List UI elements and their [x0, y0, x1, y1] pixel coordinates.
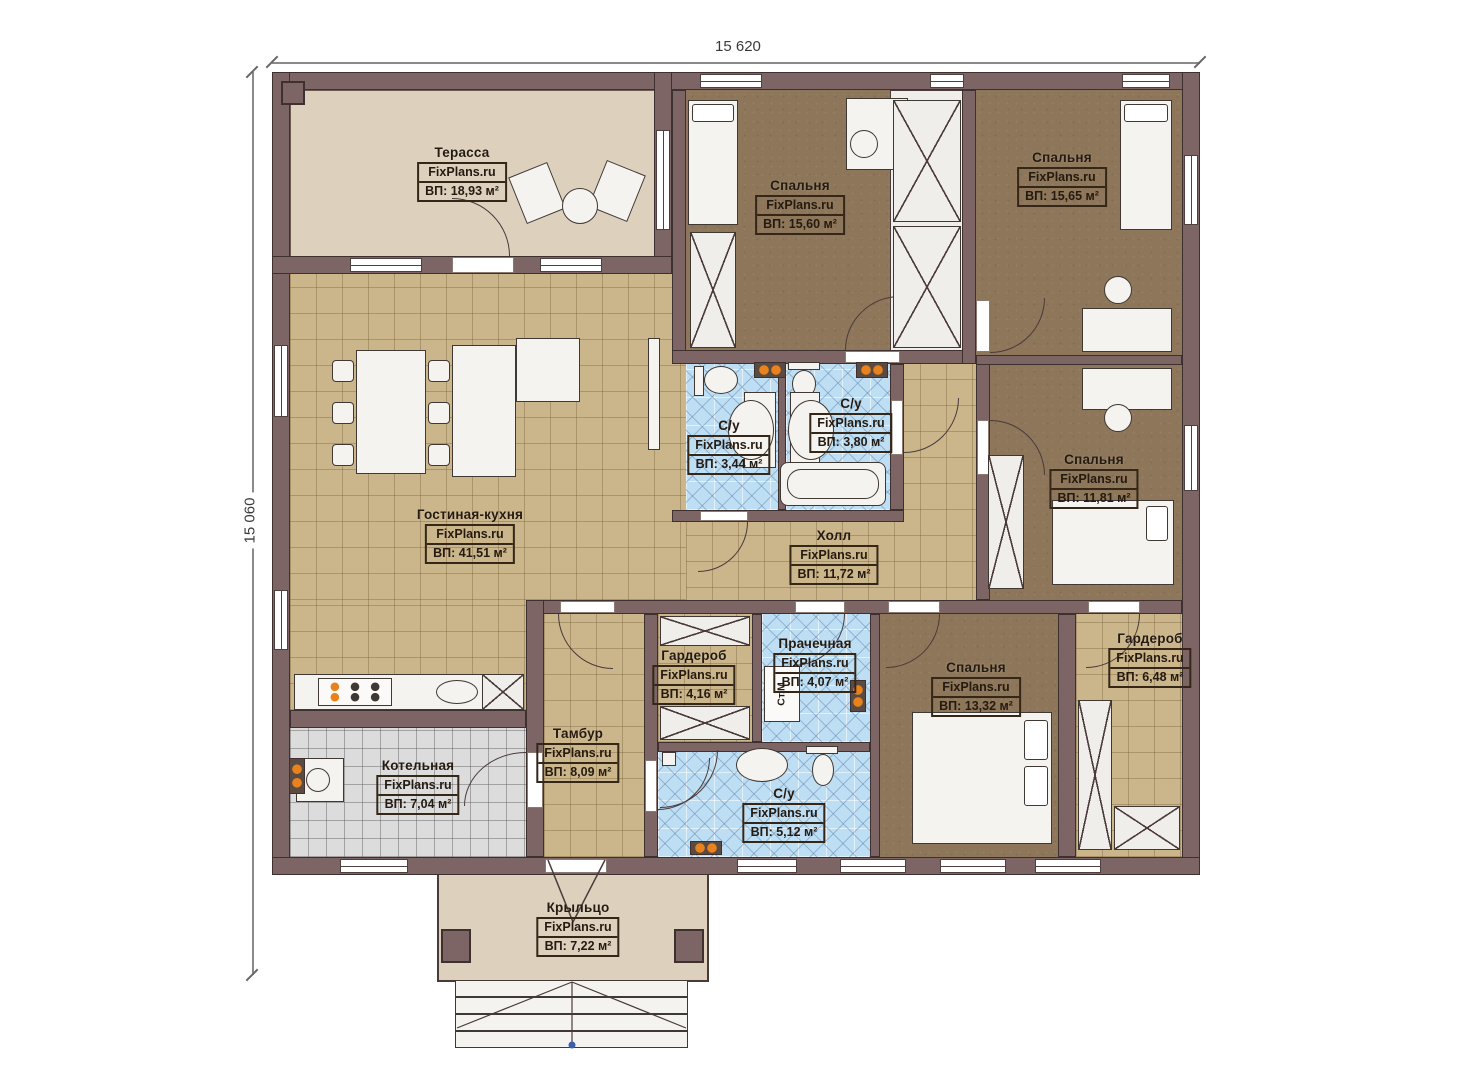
room-info-box: FixPlans.ru ВП: 7,22 м²: [536, 917, 619, 957]
bed-pillow: [1146, 506, 1168, 541]
wardrobe-box: [988, 455, 1024, 589]
room-label-bath-1: С/у FixPlans.ru ВП: 3,44 м²: [687, 418, 770, 475]
room-info-box: FixPlans.ru ВП: 7,04 м²: [376, 775, 459, 815]
brand-label: FixPlans.ru: [775, 655, 854, 672]
wardrobe-box: [893, 226, 961, 348]
wall: [672, 350, 976, 364]
dimension-line-top: [272, 62, 1200, 64]
room-label-wardrobe-1: Гардероб FixPlans.ru ВП: 4,16 м²: [652, 648, 735, 705]
shower-tray: [662, 752, 676, 766]
wall: [1058, 614, 1076, 857]
room-info-box: FixPlans.ru ВП: 11,72 м²: [789, 545, 878, 585]
area-label: ВП: 41,51 м²: [427, 543, 513, 562]
area-label: ВП: 3,44 м²: [689, 454, 768, 473]
wardrobe-box: [690, 232, 736, 348]
area-label: ВП: 11,81 м²: [1051, 488, 1136, 507]
area-label: ВП: 5,12 м²: [744, 822, 823, 841]
brand-label: FixPlans.ru: [689, 437, 768, 454]
room-label-bath-2: С/у FixPlans.ru ВП: 3,80 м²: [809, 396, 892, 453]
wall: [672, 90, 686, 364]
window: [1122, 74, 1170, 88]
toilet-tank: [694, 366, 704, 396]
floor-plan-canvas: 15 620 15 060: [0, 0, 1473, 1080]
area-label: ВП: 7,22 м²: [538, 936, 617, 955]
dining-chair: [332, 444, 354, 466]
door-opening: [888, 601, 940, 613]
stove: [318, 678, 392, 706]
window: [656, 130, 670, 230]
brand-label: FixPlans.ru: [419, 164, 505, 181]
brand-label: FixPlans.ru: [1019, 169, 1105, 186]
wall: [976, 355, 1182, 365]
toilet: [704, 366, 738, 394]
bed-pillow: [1024, 720, 1048, 760]
brand-label: FixPlans.ru: [933, 679, 1019, 696]
dimension-label-top: 15 620: [710, 38, 766, 55]
room-info-box: FixPlans.ru ВП: 11,81 м²: [1049, 469, 1138, 509]
room-label-terrace: Терасса FixPlans.ru ВП: 18,93 м²: [417, 145, 507, 202]
brand-label: FixPlans.ru: [1110, 650, 1189, 667]
window: [940, 859, 1006, 873]
room-label-bedroom-4: Спальня FixPlans.ru ВП: 13,32 м²: [931, 660, 1021, 717]
room-name: Спальня: [770, 178, 830, 193]
brand-label: FixPlans.ru: [538, 919, 617, 936]
window: [1035, 859, 1101, 873]
door-opening: [795, 601, 845, 613]
wardrobe-box: [1114, 806, 1180, 850]
brand-label: FixPlans.ru: [427, 526, 513, 543]
room-name: Спальня: [1064, 452, 1124, 467]
dimension-label-left: 15 060: [241, 493, 258, 549]
brand-label: FixPlans.ru: [757, 197, 843, 214]
room-info-box: FixPlans.ru ВП: 8,09 м²: [536, 743, 619, 783]
room-label-living: Гостиная-кухня FixPlans.ru ВП: 41,51 м²: [417, 507, 523, 564]
area-label: ВП: 15,65 м²: [1019, 186, 1105, 205]
window: [340, 859, 408, 873]
window: [350, 258, 422, 272]
corner-column: [281, 81, 305, 105]
door-opening: [645, 760, 657, 812]
room-name: Прачечная: [778, 636, 851, 651]
door-opening: [560, 601, 615, 613]
area-label: ВП: 15,60 м²: [757, 214, 843, 233]
area-label: ВП: 11,72 м²: [791, 564, 876, 583]
door-opening: [976, 300, 990, 352]
room-name: Крыльцо: [547, 900, 610, 915]
desk-chair: [1104, 404, 1132, 432]
porch-steps-decoration: [430, 857, 710, 1057]
room-info-box: FixPlans.ru ВП: 15,60 м²: [755, 195, 845, 235]
door-opening: [891, 400, 903, 455]
room-name: С/у: [840, 396, 862, 411]
wardrobe-box: [893, 100, 961, 222]
room-info-box: FixPlans.ru ВП: 3,80 м²: [809, 413, 892, 453]
door-opening: [452, 257, 514, 273]
window: [737, 859, 797, 873]
room-name: Холл: [817, 528, 852, 543]
armchair: [516, 338, 580, 402]
room-info-box: FixPlans.ru ВП: 3,44 м²: [687, 435, 770, 475]
room-info-box: FixPlans.ru ВП: 41,51 м²: [425, 524, 515, 564]
room-label-bedroom-2: Спальня FixPlans.ru ВП: 15,65 м²: [1017, 150, 1107, 207]
room-label-bedroom-1: Спальня FixPlans.ru ВП: 15,60 м²: [755, 178, 845, 235]
tv-stand: [648, 338, 660, 450]
radiator: [289, 758, 305, 794]
room-name: Спальня: [946, 660, 1006, 675]
brand-label: FixPlans.ru: [744, 805, 823, 822]
room-info-box: FixPlans.ru ВП: 15,65 м²: [1017, 167, 1107, 207]
dining-table: [356, 350, 426, 474]
radiator: [754, 362, 786, 378]
room-name: Спальня: [1032, 150, 1092, 165]
wall: [752, 614, 762, 742]
wardrobe-box: [660, 616, 750, 646]
wardrobe-box: [660, 706, 750, 740]
window: [540, 258, 602, 272]
sink: [736, 748, 788, 782]
radiator: [690, 841, 722, 855]
desk: [1082, 308, 1172, 352]
room-name: Тамбур: [553, 726, 603, 741]
room-label-bedroom-3: Спальня FixPlans.ru ВП: 11,81 м²: [1049, 452, 1138, 509]
brand-label: FixPlans.ru: [378, 777, 457, 794]
area-label: ВП: 8,09 м²: [538, 762, 617, 781]
area-label: ВП: 4,16 м²: [654, 684, 733, 703]
room-info-box: FixPlans.ru ВП: 18,93 м²: [417, 162, 507, 202]
window: [840, 859, 906, 873]
bed-pillow: [1124, 104, 1168, 122]
area-label: ВП: 3,80 м²: [811, 432, 890, 451]
brand-label: FixPlans.ru: [811, 415, 890, 432]
room-label-boiler-room: Котельная FixPlans.ru ВП: 7,04 м²: [376, 758, 459, 815]
window: [274, 345, 288, 417]
room-name: Гардероб: [1117, 631, 1182, 646]
window: [930, 74, 964, 88]
room-name: Котельная: [382, 758, 454, 773]
area-label: ВП: 13,32 м²: [933, 696, 1019, 715]
window: [274, 590, 288, 650]
kitchen-sink: [436, 680, 478, 704]
room-label-laundry: Прачечная FixPlans.ru ВП: 4,07 м²: [773, 636, 856, 693]
bathtub-inner: [787, 469, 879, 499]
wall: [272, 72, 290, 875]
door-opening: [1088, 601, 1140, 613]
room-info-box: FixPlans.ru ВП: 5,12 м²: [742, 803, 825, 843]
door-opening: [700, 511, 748, 521]
window: [1184, 155, 1198, 225]
fridge: [482, 674, 524, 710]
bed-pillow: [1024, 766, 1048, 806]
sofa: [452, 345, 516, 477]
wall: [526, 600, 1182, 614]
room-name: Гардероб: [661, 648, 726, 663]
toilet-tank: [806, 746, 838, 754]
dining-chair: [428, 402, 450, 424]
room-name: С/у: [773, 786, 795, 801]
area-label: ВП: 4,07 м²: [775, 672, 854, 691]
dining-chair: [428, 444, 450, 466]
room-name: С/у: [718, 418, 740, 433]
dining-chair: [332, 402, 354, 424]
brand-label: FixPlans.ru: [538, 745, 617, 762]
desk-chair: [850, 130, 878, 158]
room-label-bath-3: С/у FixPlans.ru ВП: 5,12 м²: [742, 786, 825, 843]
room-info-box: FixPlans.ru ВП: 13,32 м²: [931, 677, 1021, 717]
brand-label: FixPlans.ru: [654, 667, 733, 684]
wardrobe-box: [1078, 700, 1112, 850]
room-name: Терасса: [435, 145, 490, 160]
toilet-tank: [788, 362, 820, 370]
wall: [870, 614, 880, 857]
dining-chair: [332, 360, 354, 382]
area-label: ВП: 6,48 м²: [1110, 667, 1189, 686]
room-label-porch: Крыльцо FixPlans.ru ВП: 7,22 м²: [536, 900, 619, 957]
boiler-dial: [306, 768, 330, 792]
window: [1184, 425, 1198, 491]
room-label-wardrobe-2: Гардероб FixPlans.ru ВП: 6,48 м²: [1108, 631, 1191, 688]
desk-chair: [1104, 276, 1132, 304]
area-label: ВП: 7,04 м²: [378, 794, 457, 813]
bed-pillow: [692, 104, 734, 122]
room-info-box: FixPlans.ru ВП: 4,07 м²: [773, 653, 856, 693]
brand-label: FixPlans.ru: [1051, 471, 1136, 488]
wall: [962, 90, 976, 364]
room-info-box: FixPlans.ru ВП: 6,48 м²: [1108, 648, 1191, 688]
wall: [290, 710, 526, 728]
desk: [1082, 368, 1172, 410]
terrace-table: [562, 188, 598, 224]
toilet: [812, 754, 834, 786]
window: [700, 74, 762, 88]
dining-chair: [428, 360, 450, 382]
room-label-hall: Холл FixPlans.ru ВП: 11,72 м²: [789, 528, 878, 585]
brand-label: FixPlans.ru: [791, 547, 876, 564]
room-name: Гостиная-кухня: [417, 507, 523, 522]
radiator: [856, 362, 888, 378]
area-label: ВП: 18,93 м²: [419, 181, 505, 200]
room-info-box: FixPlans.ru ВП: 4,16 м²: [652, 665, 735, 705]
room-label-tambur: Тамбур FixPlans.ru ВП: 8,09 м²: [536, 726, 619, 783]
